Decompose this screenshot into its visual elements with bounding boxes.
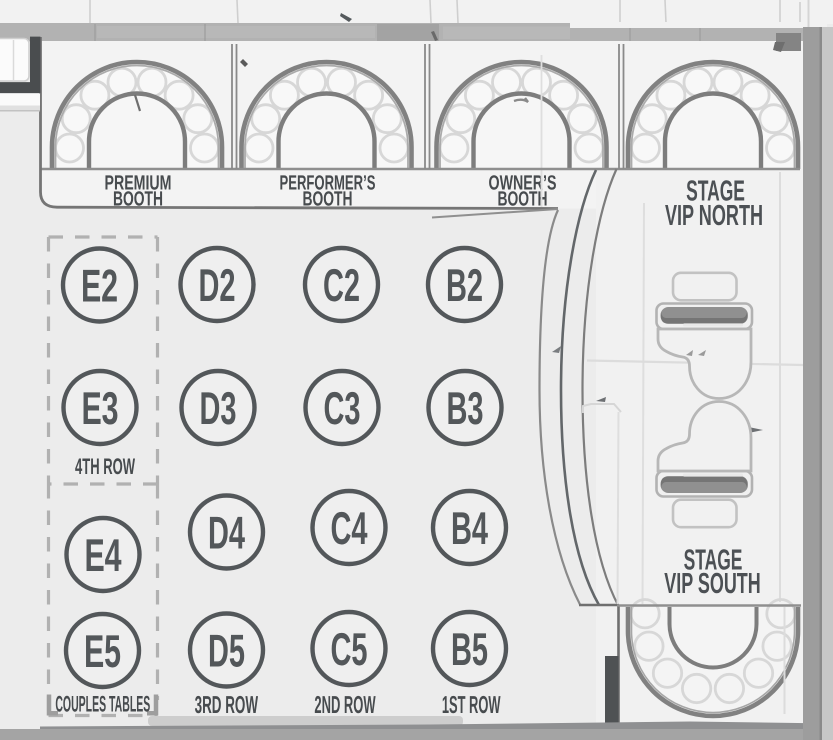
svg-text:COUPLES TABLES: COUPLES TABLES (55, 692, 150, 717)
svg-text:B2: B2 (446, 259, 483, 311)
svg-text:D4: D4 (208, 507, 245, 559)
svg-text:3RD ROW: 3RD ROW (195, 692, 259, 719)
svg-text:C2: C2 (323, 259, 360, 311)
svg-text:B3: B3 (446, 382, 483, 434)
svg-text:E5: E5 (84, 625, 121, 677)
svg-text:E2: E2 (81, 260, 118, 312)
svg-text:2ND ROW: 2ND ROW (314, 692, 376, 719)
svg-text:C5: C5 (330, 623, 367, 675)
svg-text:4TH ROW: 4TH ROW (75, 454, 135, 479)
svg-text:D5: D5 (208, 625, 245, 677)
svg-text:E3: E3 (81, 382, 118, 434)
svg-text:B4: B4 (451, 502, 488, 554)
svg-text:B5: B5 (451, 623, 488, 675)
svg-text:D3: D3 (199, 382, 236, 434)
svg-text:E4: E4 (84, 529, 121, 581)
svg-text:1ST ROW: 1ST ROW (442, 692, 501, 719)
svg-text:C4: C4 (330, 502, 367, 554)
svg-text:C3: C3 (323, 382, 360, 434)
svg-text:D2: D2 (198, 259, 235, 311)
svg-text:VIP NORTH: VIP NORTH (665, 200, 763, 232)
svg-text:VIP SOUTH: VIP SOUTH (664, 568, 760, 600)
